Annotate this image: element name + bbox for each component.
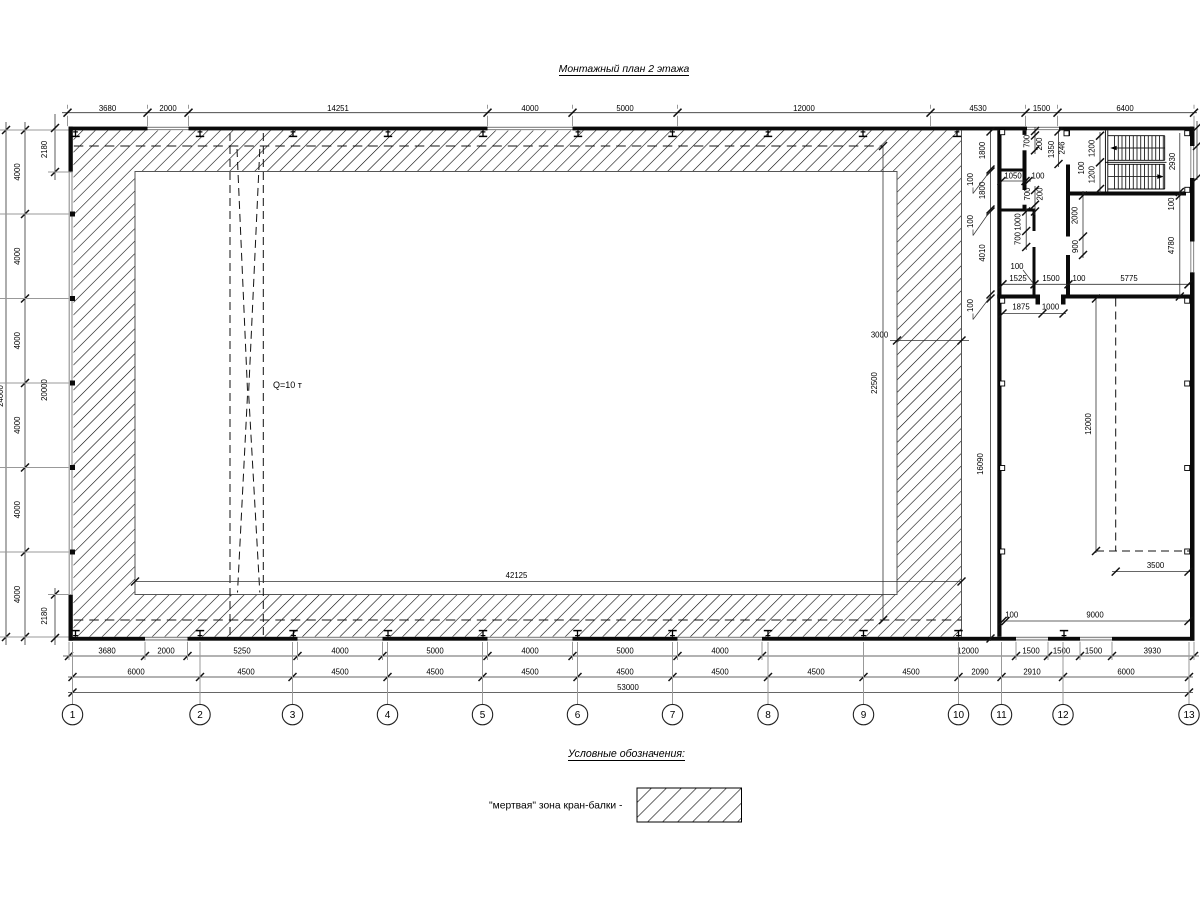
svg-text:1525: 1525: [1009, 274, 1027, 283]
svg-text:6000: 6000: [1117, 667, 1135, 676]
svg-text:1800: 1800: [978, 181, 987, 199]
svg-text:24000: 24000: [0, 384, 5, 406]
svg-text:3930: 3930: [1144, 647, 1162, 656]
svg-text:100: 100: [966, 172, 975, 186]
svg-text:42125: 42125: [506, 571, 528, 580]
svg-text:200: 200: [1035, 137, 1044, 151]
svg-text:4000: 4000: [711, 647, 729, 656]
svg-text:9000: 9000: [1086, 611, 1104, 620]
svg-text:4500: 4500: [237, 667, 255, 676]
svg-text:8: 8: [765, 710, 771, 721]
svg-text:1200: 1200: [1088, 165, 1097, 183]
svg-text:2930: 2930: [1168, 152, 1177, 170]
svg-text:100: 100: [966, 214, 975, 228]
svg-text:3680: 3680: [99, 104, 117, 113]
svg-text:4500: 4500: [711, 667, 729, 676]
svg-text:1050: 1050: [1004, 172, 1022, 181]
svg-text:5250: 5250: [233, 647, 251, 656]
svg-text:100: 100: [1167, 197, 1176, 211]
svg-text:2000: 2000: [1071, 206, 1080, 224]
svg-text:4530: 4530: [969, 104, 987, 113]
svg-text:1800: 1800: [978, 141, 987, 159]
svg-text:2090: 2090: [971, 667, 989, 676]
svg-text:16090: 16090: [976, 452, 985, 474]
svg-text:900: 900: [1071, 239, 1080, 253]
svg-text:2: 2: [197, 710, 203, 721]
svg-text:4000: 4000: [13, 331, 22, 349]
svg-text:22500: 22500: [870, 371, 879, 393]
svg-text:14251: 14251: [327, 104, 349, 113]
svg-text:"мертвая" зона кран-балки -: "мертвая" зона кран-балки -: [489, 800, 622, 812]
svg-text:2000: 2000: [157, 647, 175, 656]
svg-text:3000: 3000: [871, 331, 889, 340]
svg-text:5775: 5775: [1120, 274, 1138, 283]
svg-text:Q=10 т: Q=10 т: [273, 380, 302, 390]
svg-text:4500: 4500: [902, 667, 920, 676]
svg-text:200: 200: [1036, 187, 1045, 201]
svg-text:100: 100: [1031, 172, 1045, 181]
svg-text:12: 12: [1057, 710, 1069, 721]
svg-text:1875: 1875: [1012, 303, 1030, 312]
svg-text:2180: 2180: [40, 607, 49, 625]
svg-text:100: 100: [1010, 262, 1024, 271]
svg-text:12000: 12000: [957, 647, 979, 656]
svg-text:4000: 4000: [13, 585, 22, 603]
svg-text:4000: 4000: [13, 416, 22, 434]
svg-text:1000: 1000: [1014, 213, 1023, 231]
svg-text:4500: 4500: [807, 667, 825, 676]
svg-text:4010: 4010: [978, 244, 987, 262]
svg-text:10: 10: [953, 710, 965, 721]
svg-text:4000: 4000: [13, 247, 22, 265]
svg-text:53000: 53000: [617, 683, 639, 692]
svg-text:4780: 4780: [1167, 236, 1176, 254]
svg-text:1500: 1500: [1053, 647, 1071, 656]
svg-text:5000: 5000: [616, 647, 634, 656]
svg-text:4000: 4000: [521, 647, 539, 656]
svg-text:100: 100: [966, 298, 975, 312]
svg-text:4500: 4500: [521, 667, 539, 676]
svg-text:1200: 1200: [1088, 139, 1097, 157]
svg-text:7: 7: [670, 710, 676, 721]
svg-text:246: 246: [1058, 141, 1067, 154]
svg-text:6400: 6400: [1116, 104, 1134, 113]
svg-text:4500: 4500: [426, 667, 444, 676]
svg-text:4000: 4000: [521, 104, 539, 113]
svg-text:Монтажный план 2 этажа: Монтажный план 2 этажа: [559, 64, 690, 75]
svg-text:1500: 1500: [1033, 104, 1051, 113]
svg-text:1: 1: [70, 710, 76, 721]
svg-text:700: 700: [1023, 187, 1032, 201]
svg-text:5000: 5000: [426, 647, 444, 656]
svg-text:12000: 12000: [793, 104, 815, 113]
svg-text:3500: 3500: [1147, 561, 1165, 570]
svg-text:Условные обозначения:: Условные обозначения:: [567, 748, 685, 760]
svg-text:6: 6: [575, 710, 581, 721]
svg-text:2000: 2000: [159, 104, 177, 113]
svg-text:4500: 4500: [331, 667, 349, 676]
svg-text:3: 3: [290, 710, 296, 721]
svg-text:1000: 1000: [1042, 303, 1060, 312]
svg-text:1500: 1500: [1022, 647, 1040, 656]
svg-text:5000: 5000: [616, 104, 634, 113]
svg-text:4000: 4000: [13, 500, 22, 518]
svg-text:4000: 4000: [13, 163, 22, 181]
svg-text:5: 5: [480, 710, 486, 721]
svg-text:12000: 12000: [1084, 412, 1093, 434]
svg-text:2910: 2910: [1023, 667, 1041, 676]
svg-text:1350: 1350: [1047, 140, 1056, 158]
svg-text:1500: 1500: [1042, 274, 1060, 283]
svg-text:700: 700: [1014, 231, 1023, 245]
svg-text:4: 4: [385, 710, 391, 721]
svg-text:13: 13: [1183, 710, 1195, 721]
svg-text:11: 11: [996, 710, 1007, 721]
svg-text:20000: 20000: [40, 378, 49, 400]
svg-text:100: 100: [1077, 161, 1086, 175]
svg-text:1500: 1500: [1085, 647, 1103, 656]
svg-text:100: 100: [1072, 274, 1086, 283]
svg-text:3680: 3680: [98, 647, 116, 656]
svg-text:9: 9: [861, 710, 867, 721]
svg-text:2180: 2180: [40, 140, 49, 158]
svg-text:4500: 4500: [616, 667, 634, 676]
svg-text:6000: 6000: [127, 667, 145, 676]
svg-text:700: 700: [1023, 134, 1032, 148]
svg-text:100: 100: [1005, 611, 1019, 620]
svg-text:4000: 4000: [331, 647, 349, 656]
